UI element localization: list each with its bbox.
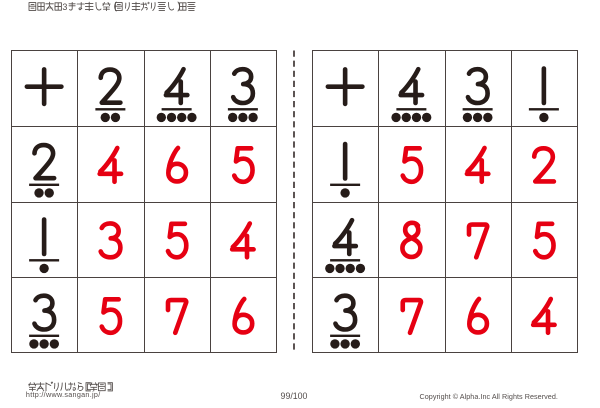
- svg-text:3: 3: [62, 2, 67, 12]
- svg-text:99/100: 99/100: [281, 391, 308, 401]
- svg-text:http://www.sangan.jp/: http://www.sangan.jp/: [26, 390, 101, 399]
- svg-text:Copyright © Alpha.Inc All Righ: Copyright © Alpha.Inc All Rights Reserve…: [420, 392, 558, 401]
